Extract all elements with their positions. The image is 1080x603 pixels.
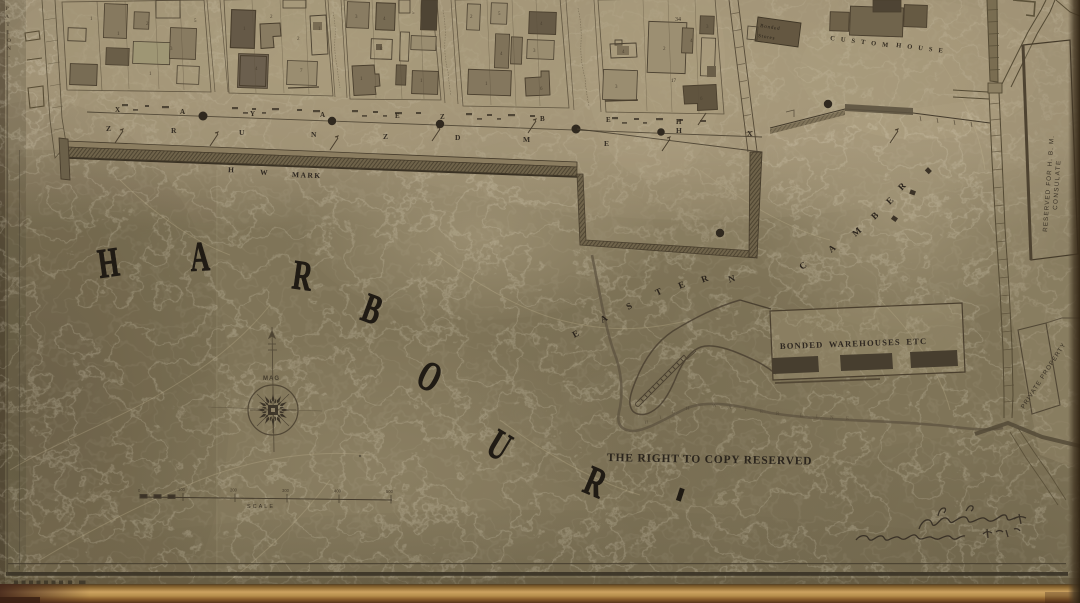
svg-text:A: A: [180, 108, 185, 116]
svg-text:A: A: [189, 233, 211, 280]
svg-text:SCALE: SCALE: [247, 504, 275, 510]
svg-text:L: L: [800, 414, 803, 419]
svg-text:H: H: [676, 118, 682, 126]
svg-text:E: E: [846, 417, 849, 422]
svg-text:Z: Z: [383, 132, 388, 141]
svg-text:34: 34: [675, 17, 681, 23]
svg-text:H: H: [228, 165, 234, 174]
svg-text:N: N: [311, 130, 317, 139]
svg-text:W: W: [260, 168, 268, 177]
svg-text:R: R: [171, 126, 177, 135]
svg-text:MAG: MAG: [263, 376, 280, 382]
svg-text:A: A: [320, 111, 325, 119]
svg-text:300: 300: [282, 488, 290, 493]
svg-text:T: T: [744, 408, 747, 413]
svg-text:Z: Z: [106, 124, 111, 133]
svg-text:E: E: [604, 139, 609, 148]
svg-text:M: M: [523, 135, 530, 144]
svg-text:T: T: [6, 22, 10, 28]
svg-text:Y: Y: [250, 110, 255, 118]
svg-text:E: E: [606, 116, 611, 124]
svg-text:100: 100: [178, 487, 186, 492]
svg-text:400: 400: [334, 489, 342, 494]
svg-text:U: U: [239, 128, 245, 137]
svg-text:H: H: [676, 126, 682, 135]
svg-text:Z: Z: [440, 113, 445, 121]
svg-text:X: X: [747, 129, 753, 138]
svg-text:W: W: [712, 404, 717, 409]
svg-text:E: E: [760, 410, 763, 415]
svg-text:E: E: [395, 112, 400, 120]
svg-text:B: B: [540, 115, 545, 123]
svg-text:200: 200: [230, 488, 238, 493]
svg-text:A: A: [728, 406, 732, 411]
svg-text:500: 500: [386, 489, 394, 494]
svg-text:17: 17: [671, 79, 677, 84]
svg-text:A: A: [5, 14, 9, 20]
svg-text:N: N: [830, 416, 834, 421]
svg-text:D: D: [455, 133, 461, 142]
svg-text:MARK: MARK: [292, 170, 322, 180]
